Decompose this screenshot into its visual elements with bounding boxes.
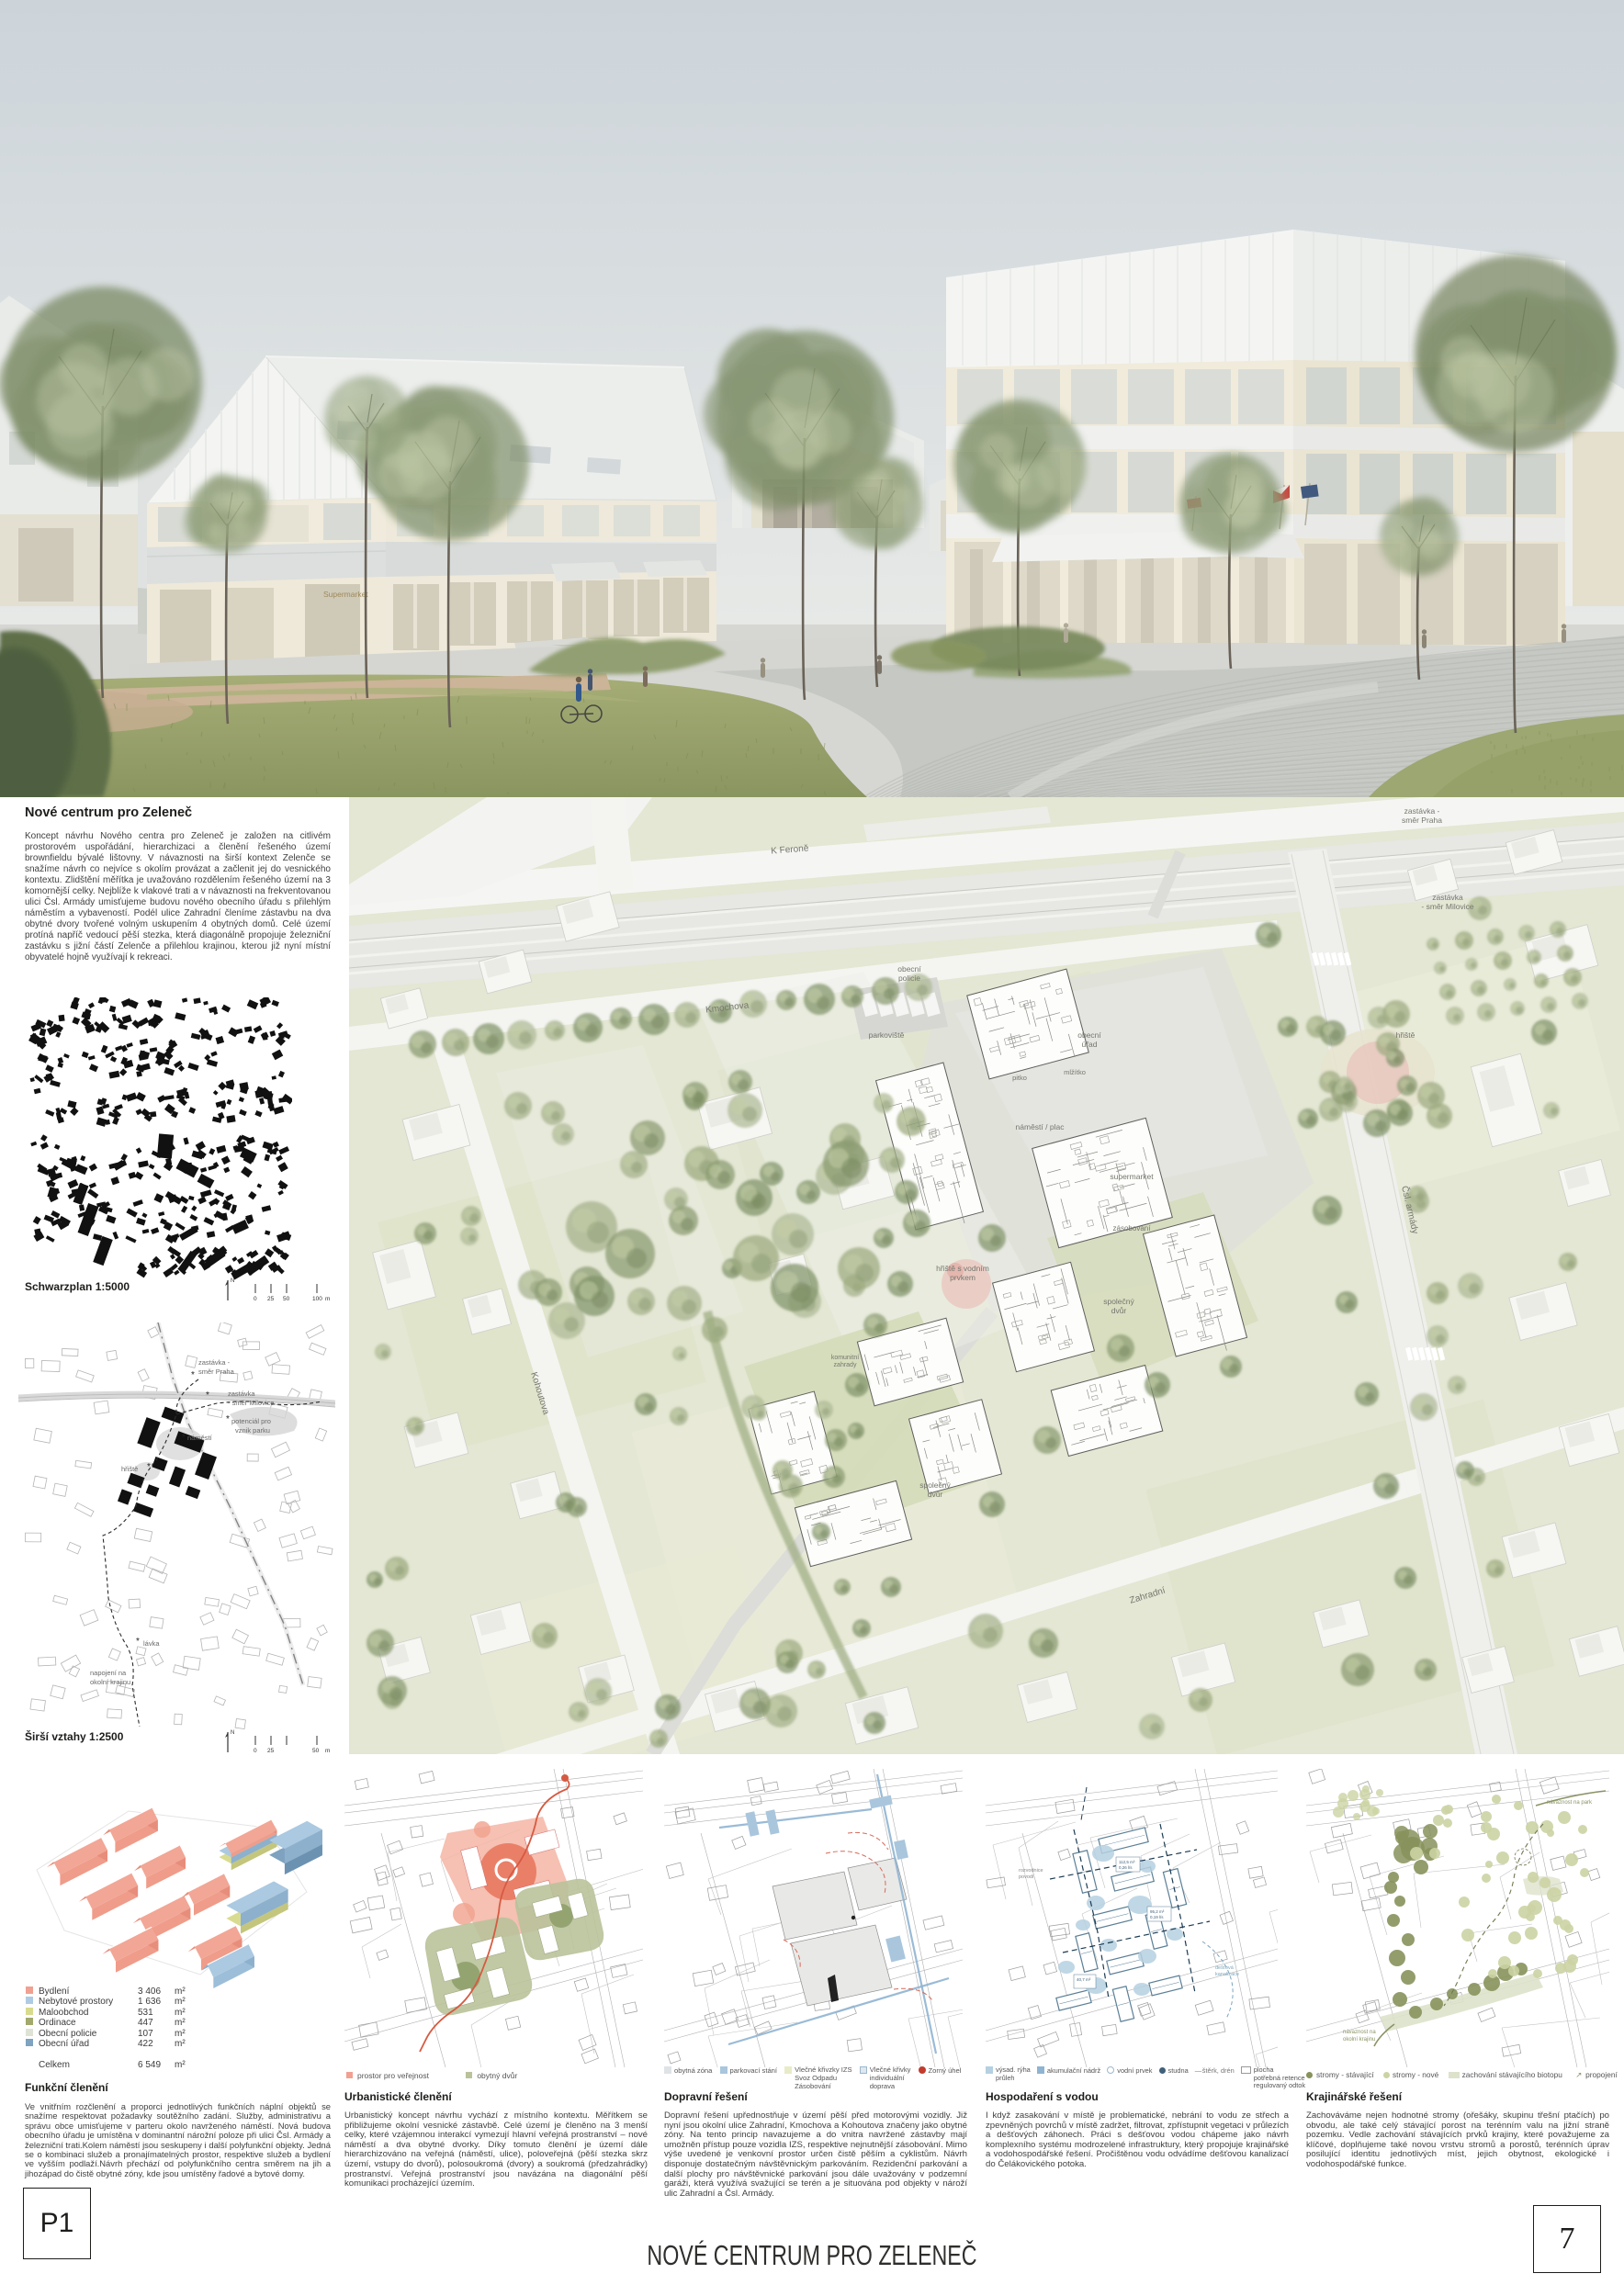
svg-text:hřiště s vodním: hřiště s vodním [936,1264,989,1273]
svg-text:95,2 m³: 95,2 m³ [1150,1909,1165,1914]
svg-text:mlžítko: mlžítko [1064,1068,1086,1076]
svg-text:0: 0 [254,1748,257,1754]
svg-text:policie: policie [898,974,920,983]
svg-text:parkoviště: parkoviště [869,1030,905,1040]
svg-text:napojení na: napojení na [90,1669,127,1677]
svg-text:0,26 l/s: 0,26 l/s [1119,1865,1133,1870]
svg-text:společný: společný [1103,1297,1134,1306]
svg-text:dešťová: dešťová [1215,1965,1235,1971]
svg-text:100: 100 [312,1296,322,1302]
svg-text:směr Praha: směr Praha [1402,816,1442,825]
svg-text:50: 50 [312,1748,320,1754]
svg-text:m: m [325,1296,330,1302]
svg-text:obecní: obecní [897,964,921,974]
svg-text:25: 25 [267,1296,275,1302]
svg-text:komunitní: komunitní [831,1355,859,1361]
svg-text:zásobování: zásobování [1113,1224,1152,1232]
svg-text:40,7 m³: 40,7 m³ [1077,1977,1091,1982]
svg-text:*: * [136,1637,140,1647]
svg-text:*: * [191,1370,195,1380]
svg-text:návaznost na: návaznost na [1343,2030,1376,2035]
svg-text:kanalizace: kanalizace [1215,1972,1239,1977]
svg-text:rozvodnice: rozvodnice [1019,1868,1043,1874]
svg-text:prvkem: prvkem [950,1273,976,1282]
svg-text:vznik parku: vznik parku [235,1426,270,1435]
svg-text:potenciál pro: potenciál pro [231,1417,271,1425]
svg-text:0,19 l/s: 0,19 l/s [1150,1915,1164,1919]
svg-text:50: 50 [283,1296,290,1302]
svg-text:návaznost na park: návaznost na park [1547,1800,1593,1806]
svg-text:dvůr: dvůr [928,1490,943,1499]
svg-text:zastávka: zastávka [1432,893,1463,902]
svg-text:okolní krajinu: okolní krajinu [90,1678,130,1686]
svg-text:dvůr: dvůr [1111,1306,1127,1315]
svg-text:společný: společný [919,1480,951,1490]
svg-text:*: * [147,1462,151,1472]
svg-text:hřiště: hřiště [1396,1030,1415,1040]
svg-text:povodí: povodí [1019,1874,1034,1880]
svg-text:N: N [231,1730,234,1736]
svg-text:*: * [226,1414,230,1424]
svg-text:- směr Milovice: - směr Milovice [228,1399,274,1407]
svg-text:okolní krajinu: okolní krajinu [1343,2037,1375,2043]
svg-text:náměstí: náměstí [187,1434,213,1442]
svg-text:25: 25 [267,1748,275,1754]
svg-text:hřiště: hřiště [121,1465,138,1473]
svg-text:zastávka -: zastávka - [1404,806,1440,816]
svg-text:Supermarket: Supermarket [323,590,368,599]
svg-text:*: * [206,1390,209,1401]
svg-text:112,5 m³: 112,5 m³ [1119,1860,1135,1864]
svg-text:supermarket: supermarket [1110,1172,1154,1181]
svg-text:zastávka: zastávka [228,1390,255,1398]
svg-text:*: * [182,1433,186,1443]
svg-text:0: 0 [254,1296,257,1302]
svg-text:pitko: pitko [1012,1074,1027,1082]
svg-text:směr Praha: směr Praha [198,1367,235,1376]
svg-text:- směr Milovice: - směr Milovice [1421,902,1473,911]
svg-text:lávka: lávka [143,1639,160,1648]
svg-text:zastávka -: zastávka - [198,1358,231,1367]
svg-text:m: m [325,1748,330,1754]
svg-text:úřad: úřad [1081,1040,1097,1049]
svg-text:obecní: obecní [1077,1030,1101,1040]
svg-text:N: N [231,1278,234,1284]
svg-text:náměstí / plac: náměstí / plac [1016,1122,1066,1131]
svg-text:zahrady: zahrady [834,1362,857,1368]
